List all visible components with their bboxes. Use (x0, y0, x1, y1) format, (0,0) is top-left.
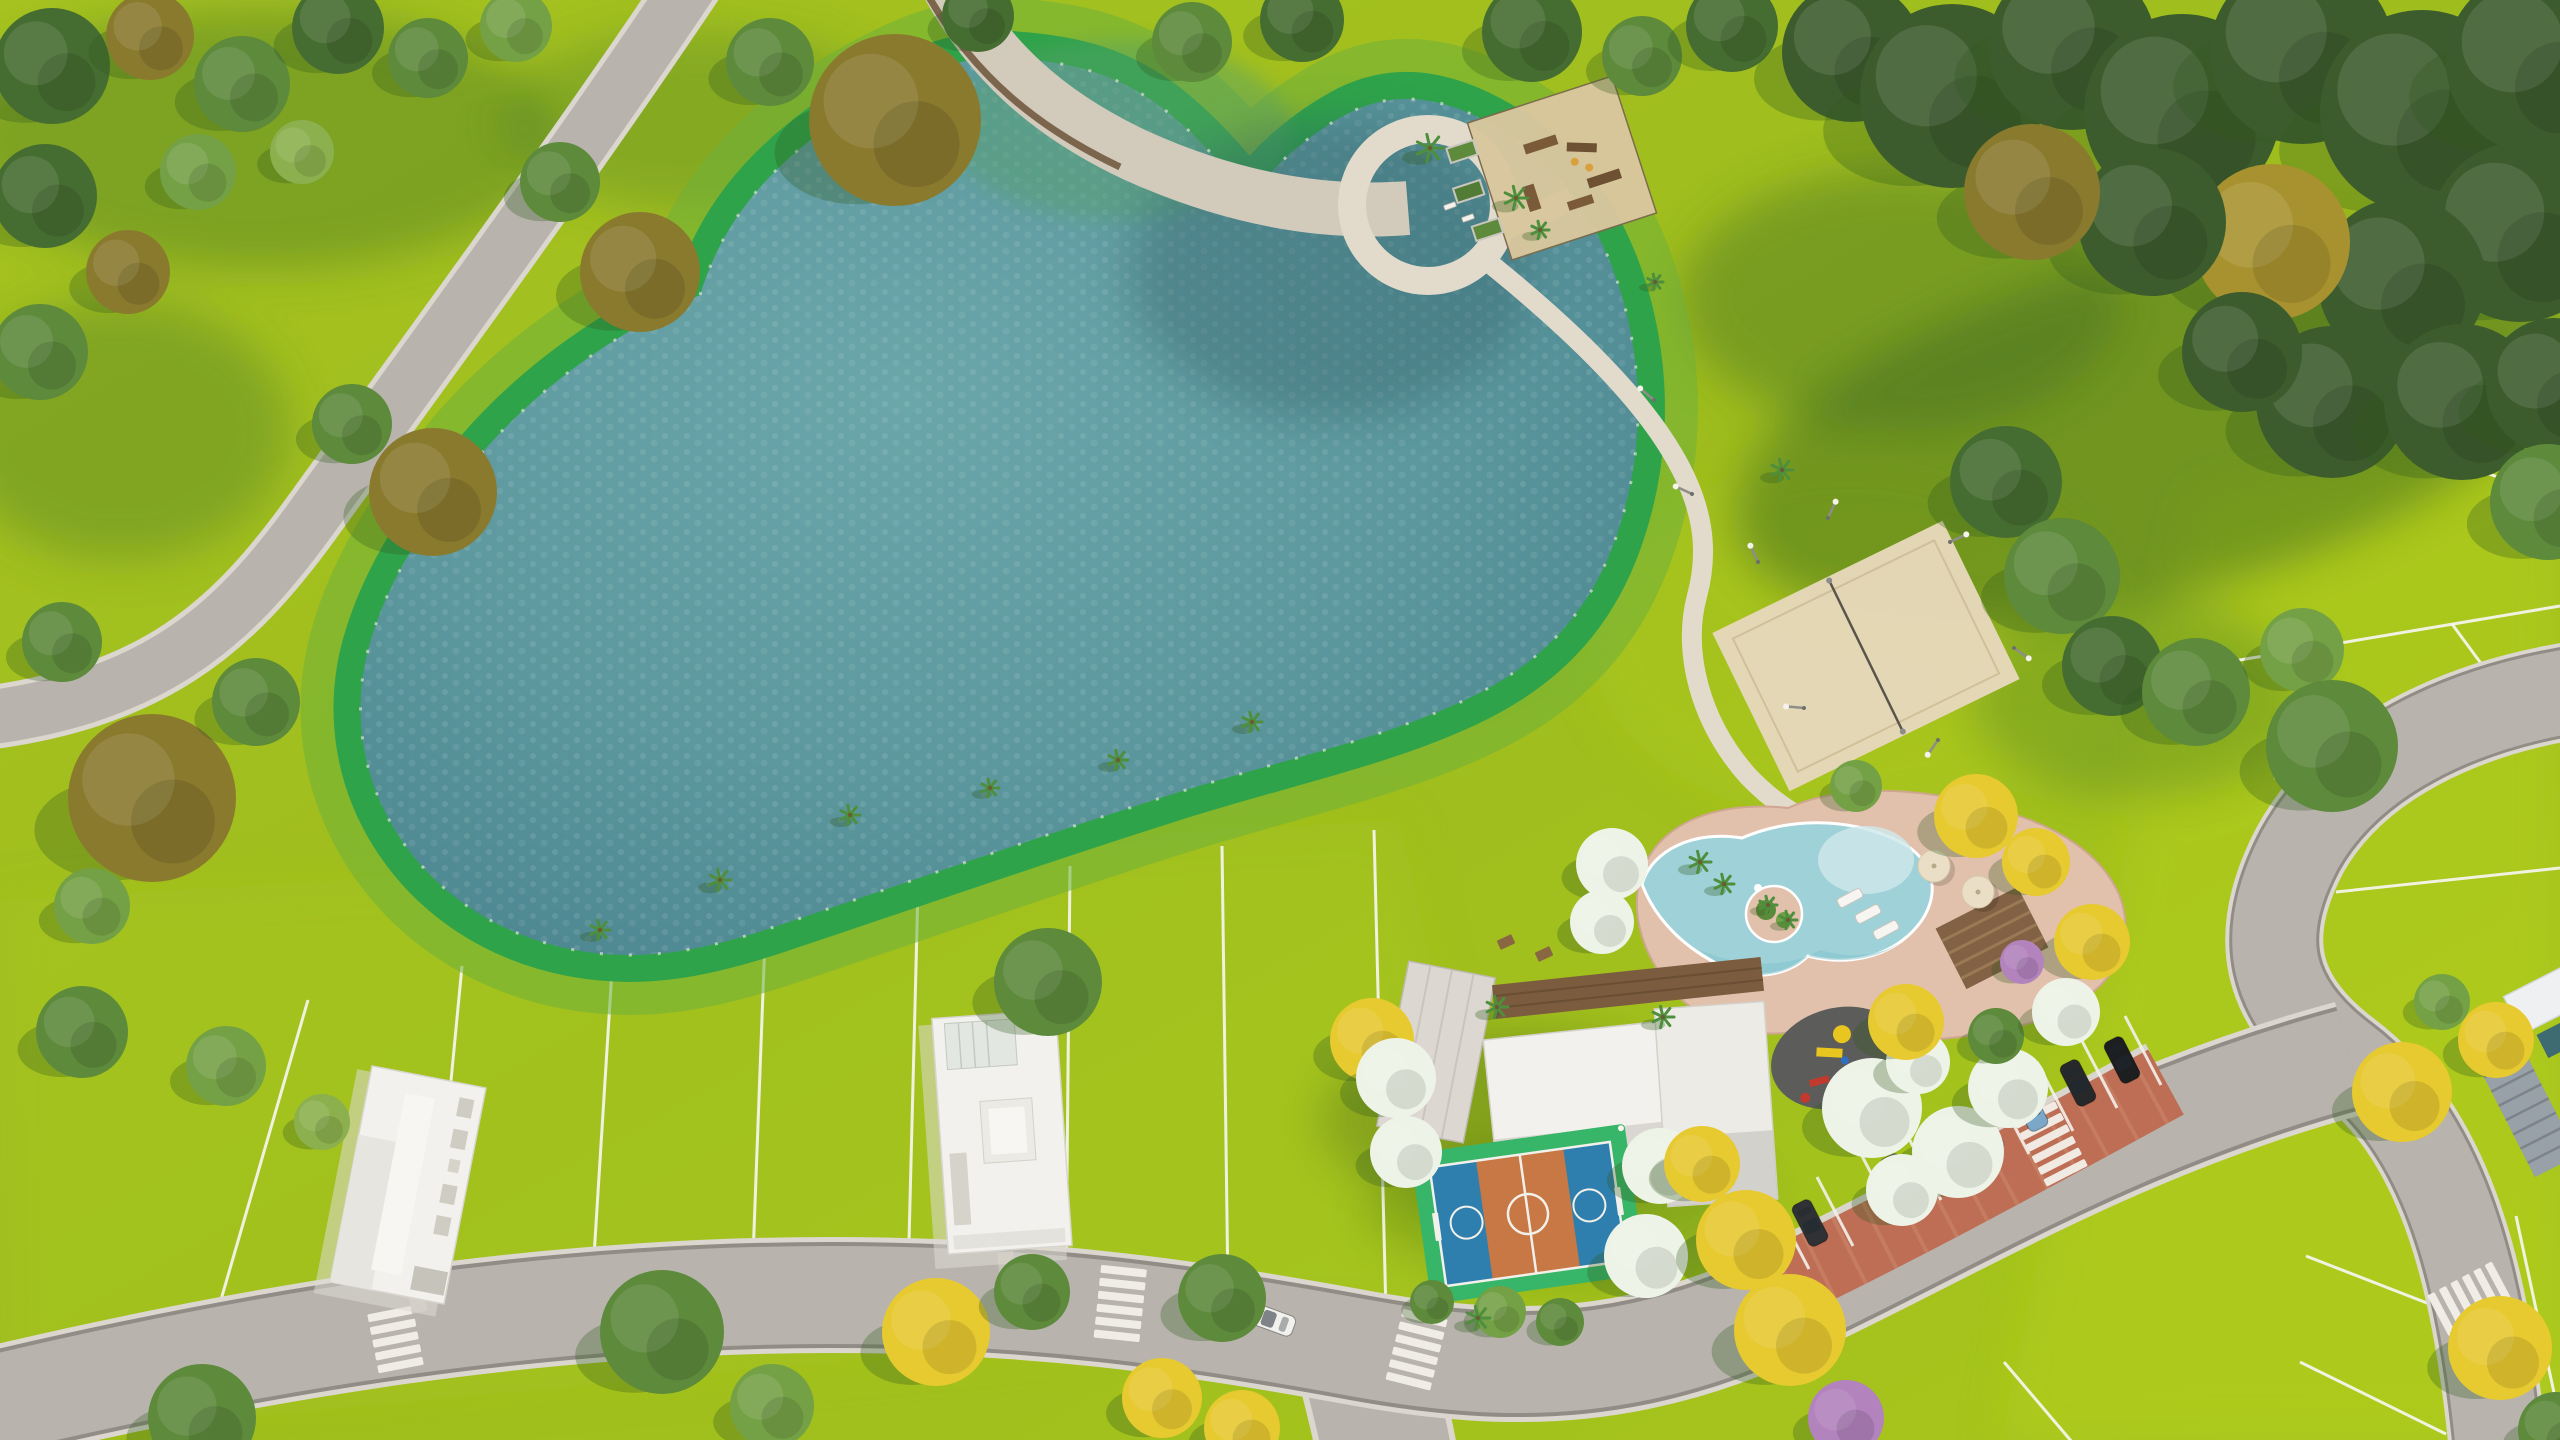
model-house-center (918, 1010, 1073, 1269)
aerial-masterplan-render (0, 0, 2560, 1440)
play-slide (1816, 1047, 1842, 1057)
pool-beach-entry (1818, 826, 1914, 894)
exercise-equipment (1567, 142, 1597, 152)
pool-float (1754, 884, 1762, 892)
